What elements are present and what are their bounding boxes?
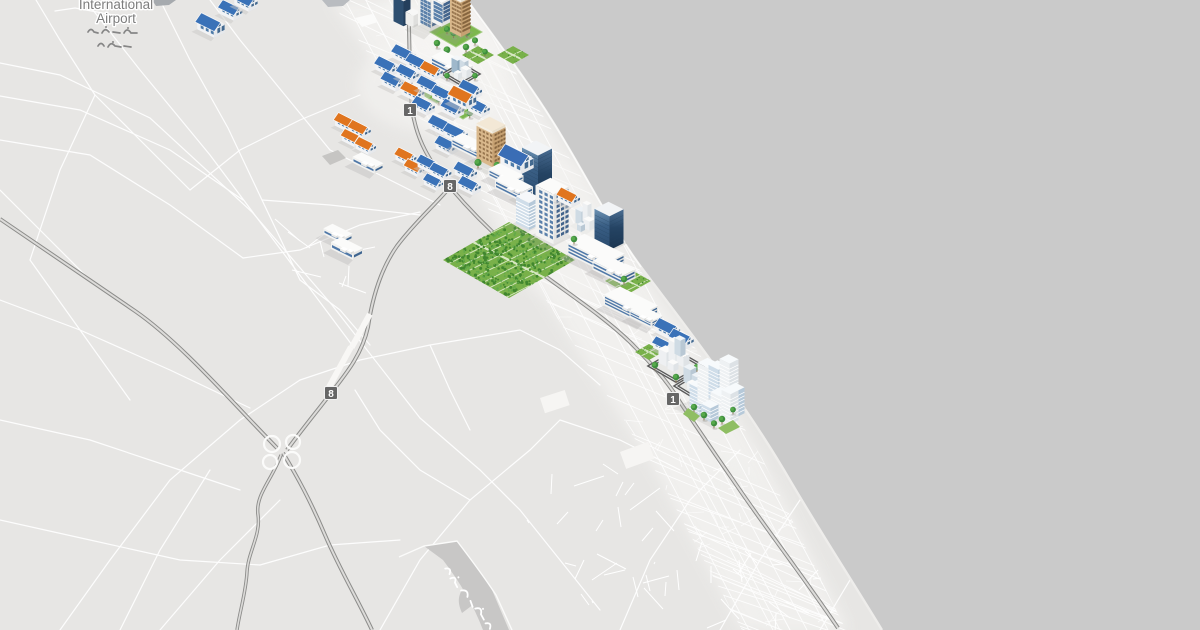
svg-text:Airport: Airport — [96, 11, 136, 26]
svg-text:8: 8 — [328, 389, 334, 400]
svg-text:1: 1 — [670, 395, 676, 406]
svg-text:1: 1 — [407, 106, 413, 117]
svg-text:8: 8 — [447, 182, 453, 193]
